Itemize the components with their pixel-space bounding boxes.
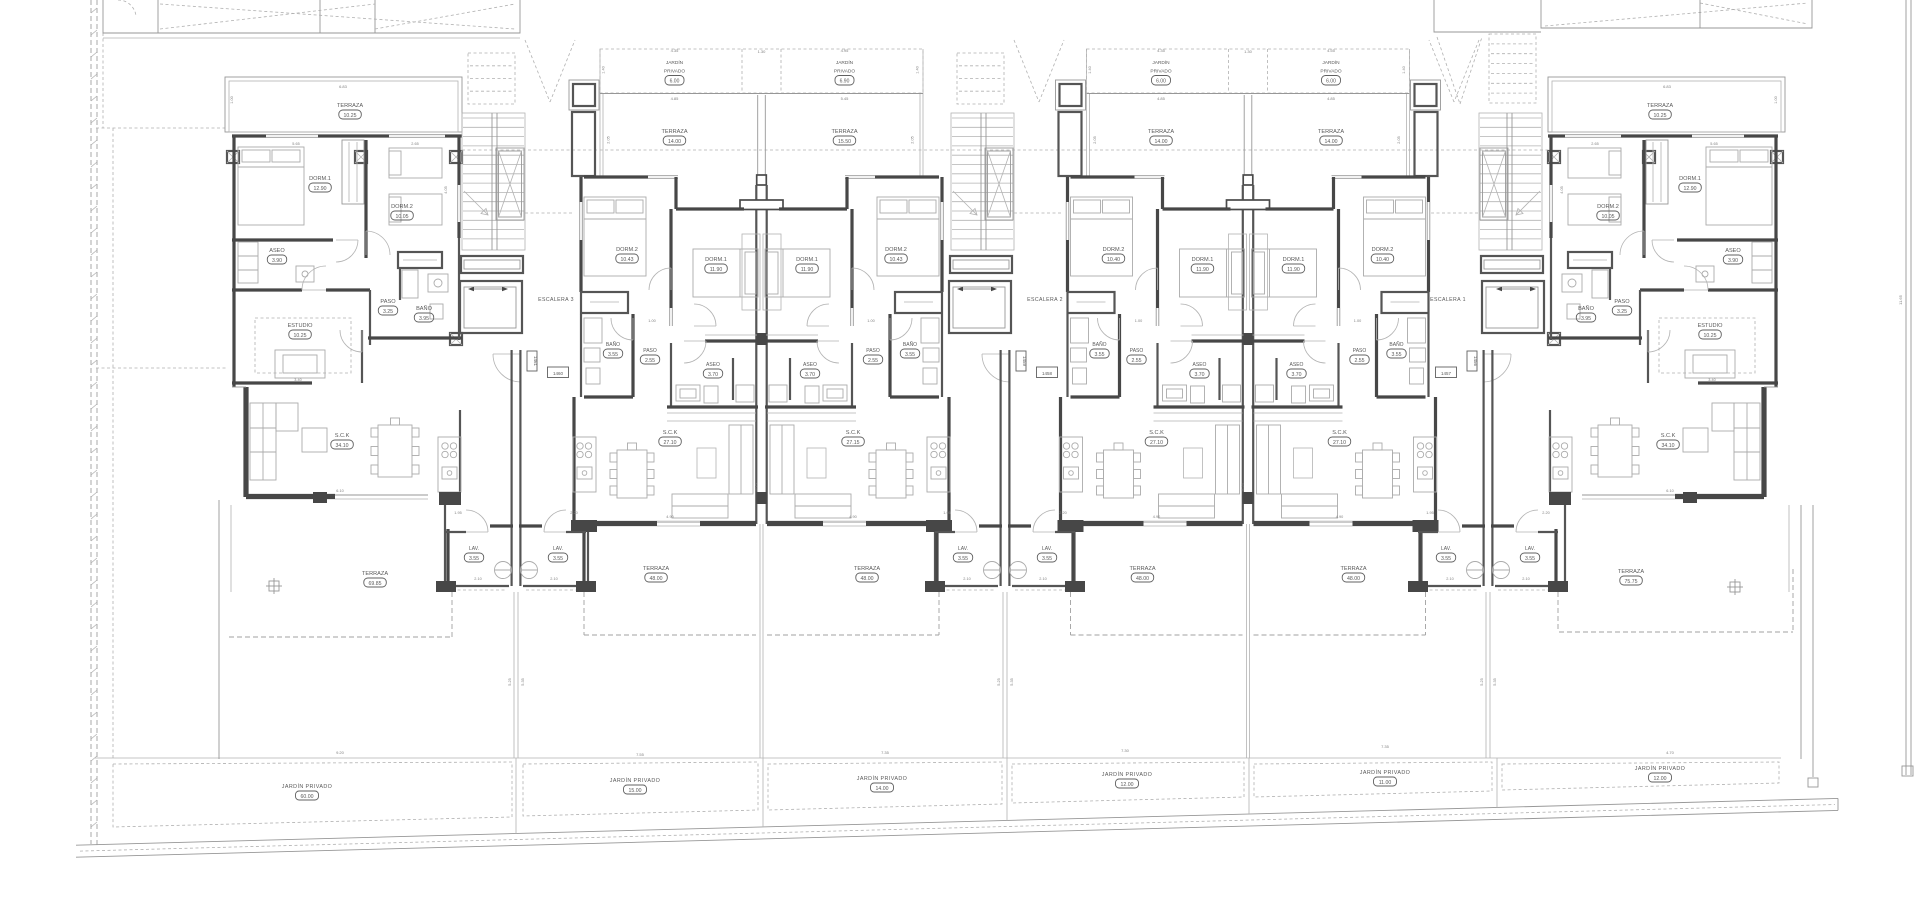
svg-text:10.43: 10.43 <box>890 257 903 263</box>
svg-text:TERRAZA: TERRAZA <box>643 566 669 572</box>
svg-text:11.90: 11.90 <box>1196 267 1209 273</box>
svg-text:TERRAZA: TERRAZA <box>1129 566 1155 572</box>
svg-text:BAÑO: BAÑO <box>606 341 620 348</box>
svg-text:4.90: 4.90 <box>1153 515 1160 519</box>
svg-text:3.40: 3.40 <box>1708 378 1715 382</box>
svg-text:ASEO: ASEO <box>1725 248 1741 254</box>
svg-text:S.C.K: S.C.K <box>1332 430 1347 436</box>
svg-text:4.85: 4.85 <box>1327 96 1336 101</box>
svg-text:10.25: 10.25 <box>344 113 357 119</box>
svg-text:JARDÍN: JARDÍN <box>1152 59 1170 66</box>
svg-text:5.25: 5.25 <box>1241 483 1245 490</box>
svg-text:4.85: 4.85 <box>1157 96 1166 101</box>
svg-text:S.C.K: S.C.K <box>1661 433 1676 439</box>
svg-text:10.25: 10.25 <box>294 333 307 339</box>
svg-text:2.20: 2.20 <box>1542 511 1549 515</box>
svg-text:4.85: 4.85 <box>671 96 680 101</box>
svg-text:4.35: 4.35 <box>671 48 680 53</box>
svg-text:1.00: 1.00 <box>648 319 655 323</box>
svg-text:LAV.: LAV. <box>469 546 479 552</box>
svg-text:S.C.K: S.C.K <box>846 430 861 436</box>
svg-text:5.25: 5.25 <box>508 678 512 685</box>
svg-text:LAV.: LAV. <box>1441 546 1451 552</box>
svg-text:2.55: 2.55 <box>1131 358 1141 364</box>
svg-text:3.55: 3.55 <box>608 352 618 358</box>
svg-text:6.00: 6.00 <box>1326 79 1336 85</box>
svg-text:1.00: 1.00 <box>1774 96 1778 103</box>
svg-text:27.10: 27.10 <box>1150 440 1163 446</box>
svg-text:TERRAZA: TERRAZA <box>1148 129 1174 135</box>
svg-text:ASEO: ASEO <box>1290 362 1304 368</box>
svg-text:48.00: 48.00 <box>1136 576 1149 582</box>
svg-text:DORM.2: DORM.2 <box>1597 204 1619 210</box>
svg-text:BAÑO: BAÑO <box>1092 341 1106 348</box>
svg-text:PASO: PASO <box>643 348 657 354</box>
svg-text:TERRAZA: TERRAZA <box>1340 566 1366 572</box>
svg-text:JARDÍN PRIVADO: JARDÍN PRIVADO <box>1635 765 1685 772</box>
svg-text:3.40: 3.40 <box>294 378 301 382</box>
svg-text:12.00: 12.00 <box>1121 782 1134 788</box>
svg-text:5.25: 5.25 <box>1480 678 1484 685</box>
svg-text:LAV.: LAV. <box>1525 546 1535 552</box>
svg-text:ESTUDIO: ESTUDIO <box>1698 323 1724 329</box>
svg-text:TERRAZA: TERRAZA <box>1647 103 1673 109</box>
svg-text:11.00: 11.00 <box>1379 780 1392 786</box>
svg-text:ESCALERA 3: ESCALERA 3 <box>538 297 574 303</box>
svg-text:10.05: 10.05 <box>396 214 409 220</box>
svg-text:2.65: 2.65 <box>411 142 418 146</box>
svg-text:11.90: 11.90 <box>710 267 723 273</box>
svg-text:69.85: 69.85 <box>369 581 382 587</box>
svg-text:TERRAZA: TERRAZA <box>1318 129 1344 135</box>
svg-text:3.55: 3.55 <box>1441 556 1451 562</box>
svg-text:12.00: 12.00 <box>1654 776 1667 782</box>
svg-text:1460: 1460 <box>553 371 564 376</box>
svg-text:27.10: 27.10 <box>664 440 677 446</box>
svg-text:1458: 1458 <box>1042 371 1053 376</box>
svg-text:4.90: 4.90 <box>849 515 856 519</box>
svg-text:ESCALERA 2: ESCALERA 2 <box>1027 297 1063 303</box>
svg-text:PASO: PASO <box>380 299 396 305</box>
svg-text:S.C.K: S.C.K <box>663 430 678 436</box>
svg-text:JARDÍN: JARDÍN <box>836 59 854 66</box>
svg-text:TERRAZA: TERRAZA <box>854 566 880 572</box>
svg-text:4.95: 4.95 <box>841 48 850 53</box>
svg-text:3.25: 3.25 <box>383 309 393 315</box>
svg-text:1.00: 1.00 <box>1135 319 1142 323</box>
svg-text:10.40: 10.40 <box>1107 257 1120 263</box>
svg-text:2.20: 2.20 <box>570 511 577 515</box>
svg-text:1.40: 1.40 <box>916 66 920 73</box>
svg-text:5.25: 5.25 <box>755 483 759 490</box>
svg-text:1461: 1461 <box>533 356 538 367</box>
svg-text:PASO: PASO <box>866 348 880 354</box>
svg-text:60.00: 60.00 <box>301 794 314 800</box>
svg-text:ASEO: ASEO <box>706 362 720 368</box>
svg-text:3.55: 3.55 <box>905 352 915 358</box>
svg-text:BAÑO: BAÑO <box>1578 305 1595 312</box>
svg-text:BAÑO: BAÑO <box>416 305 433 312</box>
svg-text:1.30: 1.30 <box>1244 49 1253 54</box>
svg-text:1.30: 1.30 <box>758 49 767 54</box>
svg-text:5.65: 5.65 <box>1710 142 1717 146</box>
svg-text:TERRAZA: TERRAZA <box>337 103 363 109</box>
svg-text:2.55: 2.55 <box>1354 358 1364 364</box>
svg-text:3.70: 3.70 <box>1291 372 1301 378</box>
svg-text:48.00: 48.00 <box>650 576 663 582</box>
svg-text:JARDÍN PRIVADO: JARDÍN PRIVADO <box>857 775 907 782</box>
svg-text:ASEO: ASEO <box>1193 362 1207 368</box>
svg-text:TERRAZA: TERRAZA <box>362 571 388 577</box>
svg-text:DORM.1: DORM.1 <box>705 257 727 263</box>
svg-text:3.90: 3.90 <box>1728 258 1738 264</box>
svg-text:1.95: 1.95 <box>943 511 950 515</box>
svg-text:PRIVADO: PRIVADO <box>834 69 856 75</box>
svg-text:6.10: 6.10 <box>336 489 343 493</box>
svg-text:6.00: 6.00 <box>1156 79 1166 85</box>
svg-text:5.45: 5.45 <box>841 96 850 101</box>
svg-text:6.83: 6.83 <box>339 84 348 89</box>
svg-text:1457: 1457 <box>1441 371 1452 376</box>
svg-text:3.55: 3.55 <box>1525 556 1535 562</box>
svg-text:1.95: 1.95 <box>454 511 461 515</box>
svg-text:2.55: 2.55 <box>645 358 655 364</box>
svg-text:BAÑO: BAÑO <box>1389 341 1403 348</box>
svg-text:34.10: 34.10 <box>336 443 349 449</box>
svg-text:S.C.K: S.C.K <box>335 433 350 439</box>
svg-text:ASEO: ASEO <box>803 362 817 368</box>
svg-text:3.55: 3.55 <box>553 556 563 562</box>
svg-text:10.25: 10.25 <box>1654 113 1667 119</box>
svg-text:ESCALERA 1: ESCALERA 1 <box>1430 297 1466 303</box>
svg-text:2.05: 2.05 <box>607 136 611 143</box>
svg-text:4.70: 4.70 <box>1666 750 1675 755</box>
svg-text:3.55: 3.55 <box>469 556 479 562</box>
svg-text:4.55: 4.55 <box>1327 48 1336 53</box>
svg-text:4.90: 4.90 <box>1336 515 1343 519</box>
svg-text:DORM.1: DORM.1 <box>309 176 331 182</box>
svg-text:JARDÍN PRIVADO: JARDÍN PRIVADO <box>610 777 660 784</box>
svg-text:PASO: PASO <box>1353 348 1367 354</box>
svg-text:7.55: 7.55 <box>636 752 645 757</box>
svg-text:2.10: 2.10 <box>550 577 557 581</box>
svg-text:5.65: 5.65 <box>292 142 299 146</box>
svg-text:1.00: 1.00 <box>1354 319 1361 323</box>
svg-text:DORM.1: DORM.1 <box>1679 176 1701 182</box>
svg-text:3.25: 3.25 <box>1617 309 1627 315</box>
svg-text:2.10: 2.10 <box>1522 577 1529 581</box>
svg-text:10.43: 10.43 <box>621 257 634 263</box>
svg-text:TERRAZA: TERRAZA <box>661 129 687 135</box>
svg-text:DORM.2: DORM.2 <box>616 247 638 253</box>
svg-text:3.95: 3.95 <box>1581 316 1591 322</box>
svg-text:3.70: 3.70 <box>1194 372 1204 378</box>
svg-text:DORM.1: DORM.1 <box>796 257 818 263</box>
svg-text:10.25: 10.25 <box>1704 333 1717 339</box>
svg-text:PRIVADO: PRIVADO <box>1320 69 1342 75</box>
svg-text:6.00: 6.00 <box>670 79 680 85</box>
svg-text:10.05: 10.05 <box>1602 214 1615 220</box>
svg-text:27.15: 27.15 <box>847 440 860 446</box>
svg-text:S.C.K: S.C.K <box>1149 430 1164 436</box>
svg-text:2.10: 2.10 <box>1039 577 1046 581</box>
svg-text:6.10: 6.10 <box>1666 489 1673 493</box>
svg-text:6.90: 6.90 <box>840 79 850 85</box>
svg-text:3.70: 3.70 <box>708 372 718 378</box>
svg-text:2.10: 2.10 <box>1446 577 1453 581</box>
svg-text:75.75: 75.75 <box>1625 579 1638 585</box>
svg-text:1.00: 1.00 <box>867 319 874 323</box>
svg-text:14.00: 14.00 <box>1325 139 1338 145</box>
svg-text:ESTUDIO: ESTUDIO <box>288 323 314 329</box>
svg-text:4.05: 4.05 <box>444 186 448 193</box>
svg-text:1456: 1456 <box>1473 356 1478 367</box>
svg-text:DORM.1: DORM.1 <box>1192 257 1214 263</box>
svg-text:PASO: PASO <box>1614 299 1630 305</box>
svg-text:3.70: 3.70 <box>805 372 815 378</box>
svg-text:5.35: 5.35 <box>521 678 525 685</box>
svg-text:14.00: 14.00 <box>876 786 889 792</box>
svg-text:PRIVADO: PRIVADO <box>664 69 686 75</box>
svg-text:7.35: 7.35 <box>1381 744 1390 749</box>
svg-text:4.90: 4.90 <box>666 515 673 519</box>
svg-text:TERRAZA: TERRAZA <box>831 129 857 135</box>
svg-text:1.40: 1.40 <box>1402 66 1406 73</box>
svg-text:JARDÍN PRIVADO: JARDÍN PRIVADO <box>282 783 332 790</box>
svg-text:DORM.2: DORM.2 <box>1103 247 1125 253</box>
svg-text:PRIVADO: PRIVADO <box>1150 69 1172 75</box>
svg-text:PASO: PASO <box>1130 348 1144 354</box>
svg-text:JARDÍN PRIVADO: JARDÍN PRIVADO <box>1102 771 1152 778</box>
svg-text:1459: 1459 <box>1022 356 1027 367</box>
svg-text:3.55: 3.55 <box>1391 352 1401 358</box>
svg-text:2.65: 2.65 <box>1591 142 1598 146</box>
svg-text:11.65: 11.65 <box>1898 294 1903 304</box>
svg-text:6.83: 6.83 <box>1663 84 1672 89</box>
svg-text:DORM.2: DORM.2 <box>1372 247 1394 253</box>
svg-text:3.90: 3.90 <box>272 258 282 264</box>
svg-text:3.95: 3.95 <box>419 316 429 322</box>
svg-text:12.90: 12.90 <box>314 186 327 192</box>
svg-text:15.00: 15.00 <box>629 788 642 794</box>
svg-text:4.35: 4.35 <box>1157 48 1166 53</box>
svg-text:15.50: 15.50 <box>838 139 851 145</box>
svg-text:2.10: 2.10 <box>963 577 970 581</box>
svg-text:DORM.1: DORM.1 <box>1283 257 1305 263</box>
svg-text:48.00: 48.00 <box>861 576 874 582</box>
svg-text:7.30: 7.30 <box>1121 748 1130 753</box>
svg-text:ASEO: ASEO <box>269 248 285 254</box>
svg-text:LAV.: LAV. <box>553 546 563 552</box>
svg-text:2.20: 2.20 <box>1059 511 1066 515</box>
svg-text:7.35: 7.35 <box>881 750 890 755</box>
svg-text:2.10: 2.10 <box>474 577 481 581</box>
svg-text:5.35: 5.35 <box>1010 678 1014 685</box>
svg-text:14.00: 14.00 <box>668 139 681 145</box>
svg-text:TERRAZA: TERRAZA <box>1618 569 1644 575</box>
svg-text:BAÑO: BAÑO <box>903 341 917 348</box>
svg-text:LAV.: LAV. <box>958 546 968 552</box>
svg-text:2.05: 2.05 <box>1093 136 1097 143</box>
svg-text:27.10: 27.10 <box>1333 440 1346 446</box>
svg-text:1.95: 1.95 <box>1426 511 1433 515</box>
svg-text:4.05: 4.05 <box>1560 186 1564 193</box>
svg-text:12.90: 12.90 <box>1684 186 1697 192</box>
svg-text:10.40: 10.40 <box>1376 257 1389 263</box>
svg-text:2.05: 2.05 <box>1397 136 1401 143</box>
svg-text:DORM.2: DORM.2 <box>885 247 907 253</box>
svg-text:11.90: 11.90 <box>801 267 814 273</box>
svg-text:JARDÍN PRIVADO: JARDÍN PRIVADO <box>1360 769 1410 776</box>
svg-text:3.55: 3.55 <box>958 556 968 562</box>
svg-text:DORM.2: DORM.2 <box>391 204 413 210</box>
svg-text:5.35: 5.35 <box>1493 678 1497 685</box>
svg-text:1.00: 1.00 <box>230 96 234 103</box>
svg-text:1.40: 1.40 <box>602 66 606 73</box>
svg-text:3.55: 3.55 <box>1094 352 1104 358</box>
svg-text:34.10: 34.10 <box>1662 443 1675 449</box>
svg-text:JARDÍN: JARDÍN <box>1322 59 1340 66</box>
svg-text:LAV.: LAV. <box>1042 546 1052 552</box>
svg-text:3.55: 3.55 <box>1042 556 1052 562</box>
svg-text:2.55: 2.55 <box>868 358 878 364</box>
svg-text:1.40: 1.40 <box>1088 66 1092 73</box>
svg-text:14.00: 14.00 <box>1155 139 1168 145</box>
svg-text:5.25: 5.25 <box>997 678 1001 685</box>
svg-text:11.90: 11.90 <box>1287 267 1300 273</box>
svg-text:2.05: 2.05 <box>911 136 915 143</box>
svg-text:48.00: 48.00 <box>1347 576 1360 582</box>
svg-text:JARDÍN: JARDÍN <box>666 59 684 66</box>
svg-text:9.20: 9.20 <box>336 750 345 755</box>
